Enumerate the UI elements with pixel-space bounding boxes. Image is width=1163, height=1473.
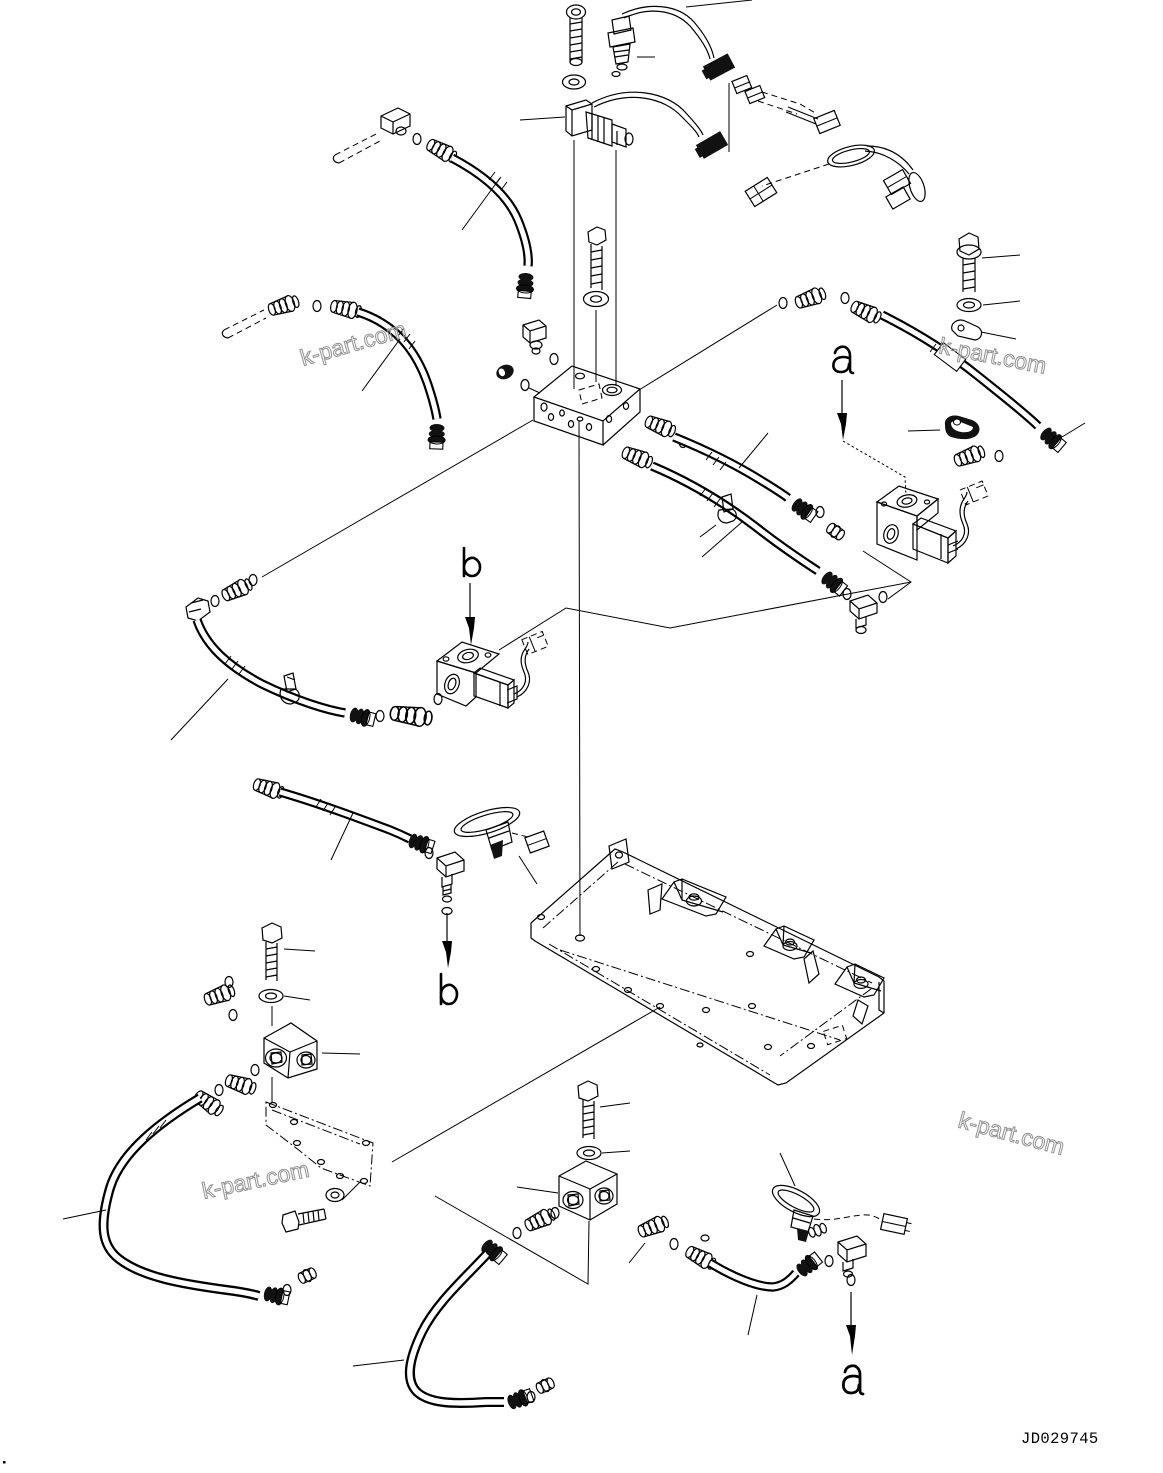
svg-text:JD029745: JD029745 (1021, 1430, 1099, 1448)
